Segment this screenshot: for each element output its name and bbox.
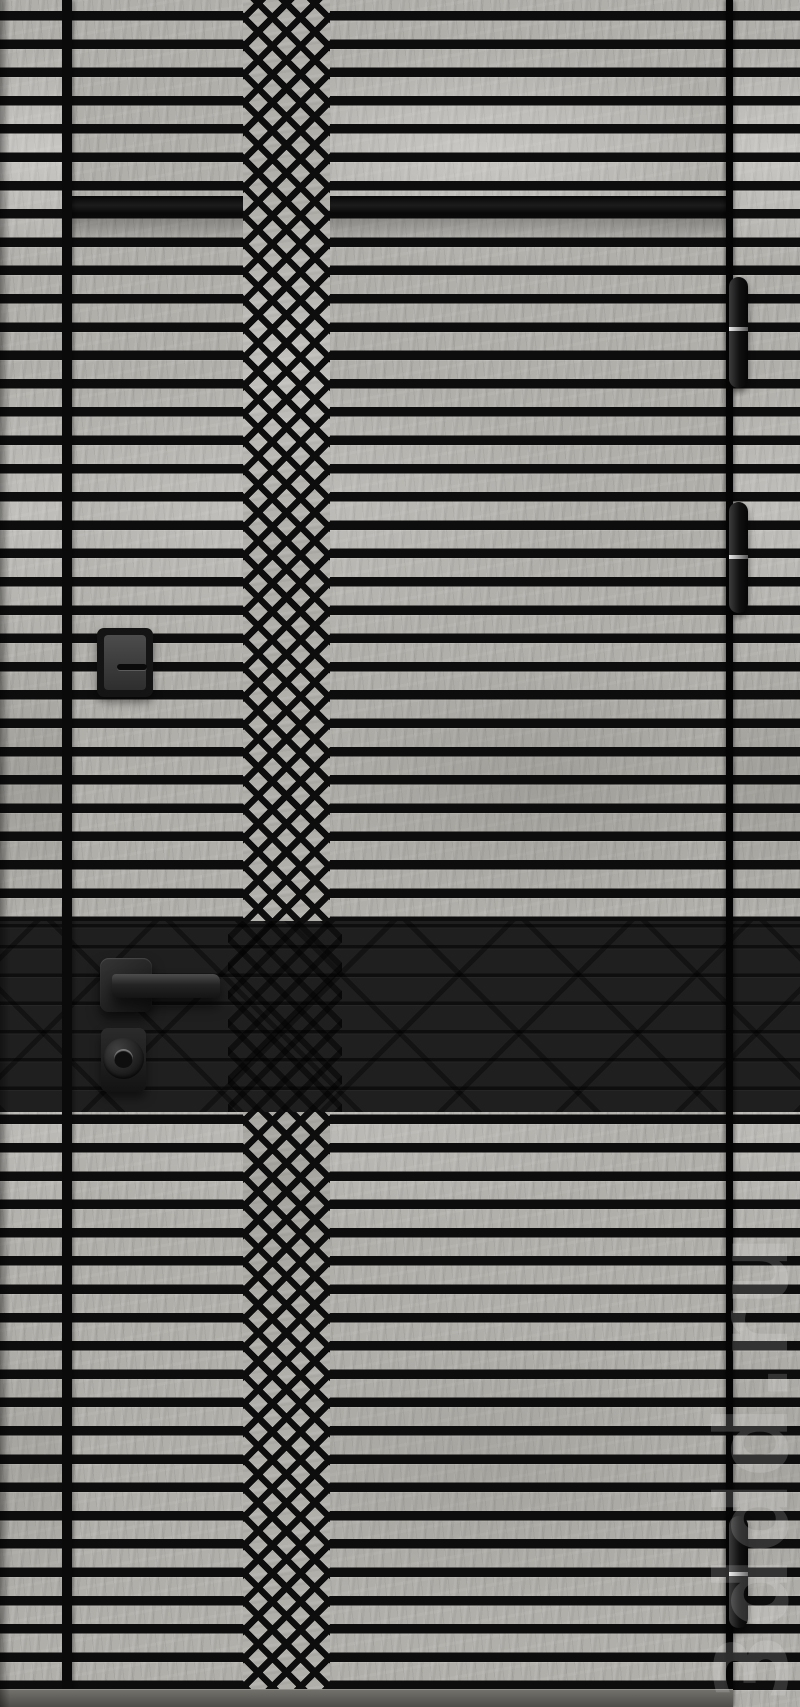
upper-lock-cover — [97, 628, 153, 697]
door-handle-lever — [112, 974, 220, 998]
hinge-top-bearing-ring — [729, 327, 748, 331]
horizontal-groove-shadow — [72, 213, 726, 243]
hinge-top — [729, 277, 748, 388]
left-edge-shadow — [0, 0, 10, 1707]
vertical-groove-bar — [62, 0, 72, 1690]
door-render: 3ddd.ru — [0, 0, 800, 1707]
diamond-lattice-column — [243, 0, 330, 1690]
door-leaf-main-panel — [72, 0, 726, 1707]
watermark-text: 3ddd.ru — [698, 1231, 800, 1702]
lock-cylinder — [103, 1038, 144, 1079]
keyhole — [114, 1049, 133, 1068]
hinge-middle — [729, 502, 748, 613]
slat-pattern-main — [72, 0, 726, 1707]
accent-band-lattice-emboss — [228, 921, 342, 1112]
upper-lock-plate — [104, 635, 146, 690]
hinge-middle-bearing-ring — [729, 555, 748, 559]
cylinder-lock-escutcheon — [101, 1028, 146, 1092]
upper-lock-slot — [117, 664, 147, 670]
door-threshold — [0, 1689, 733, 1707]
horizontal-groove — [72, 196, 726, 213]
